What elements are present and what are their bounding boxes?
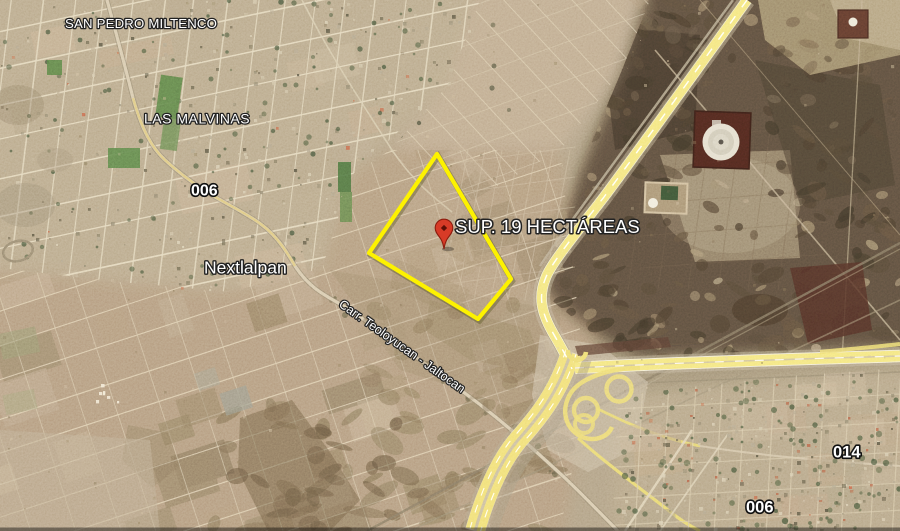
svg-text:LAS MALVINAS: LAS MALVINAS xyxy=(144,111,250,127)
svg-text:SUP. 19 HECTÁREAS: SUP. 19 HECTÁREAS xyxy=(455,216,640,237)
svg-text:014: 014 xyxy=(833,444,861,462)
svg-text:SAN PEDRO MILTENCO: SAN PEDRO MILTENCO xyxy=(65,16,217,31)
svg-text:Nextlalpan: Nextlalpan xyxy=(204,258,287,278)
svg-text:006: 006 xyxy=(746,499,774,517)
svg-text:006: 006 xyxy=(191,183,218,200)
